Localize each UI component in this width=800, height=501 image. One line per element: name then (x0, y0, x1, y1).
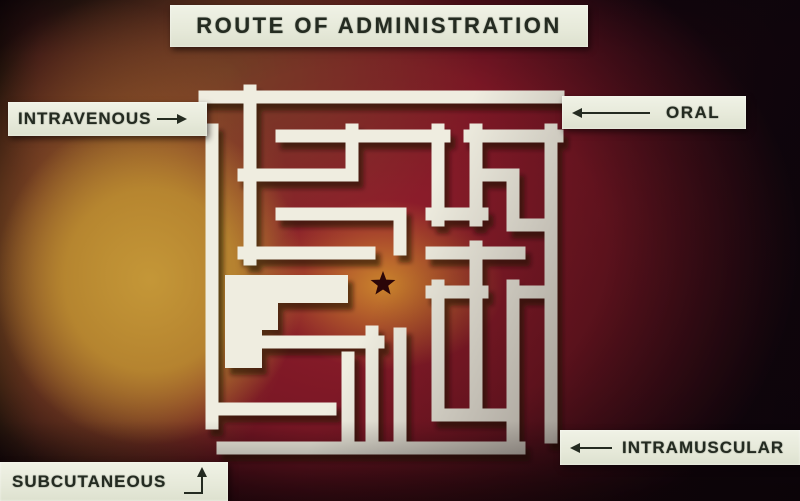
oral-text: ORAL (666, 103, 720, 123)
intravenous-text: INTRAVENOUS (18, 109, 151, 129)
left-long-arrow-icon (572, 107, 650, 119)
slide-route-of-administration: ROUTE OF ADMINISTRATION INTRAVENOUS ORAL… (0, 0, 800, 501)
center-star-icon (371, 271, 396, 295)
maze-walls (205, 91, 558, 448)
maze-graphic (0, 0, 800, 501)
label-oral: ORAL (562, 96, 746, 129)
subcutaneous-text: SUBCUTANEOUS (12, 472, 166, 492)
label-subcutaneous: SUBCUTANEOUS (0, 462, 228, 501)
maze-wall (282, 214, 400, 249)
maze-wall-block (225, 275, 348, 368)
left-arrow-icon (570, 442, 612, 454)
label-intramuscular: INTRAMUSCULAR (560, 430, 800, 465)
intramuscular-text: INTRAMUSCULAR (622, 438, 784, 458)
elbow-up-arrow-icon (182, 467, 216, 497)
label-intravenous: INTRAVENOUS (8, 102, 207, 136)
title-text: ROUTE OF ADMINISTRATION (196, 13, 561, 39)
page-title: ROUTE OF ADMINISTRATION (170, 5, 588, 47)
right-arrow-icon (157, 113, 187, 125)
